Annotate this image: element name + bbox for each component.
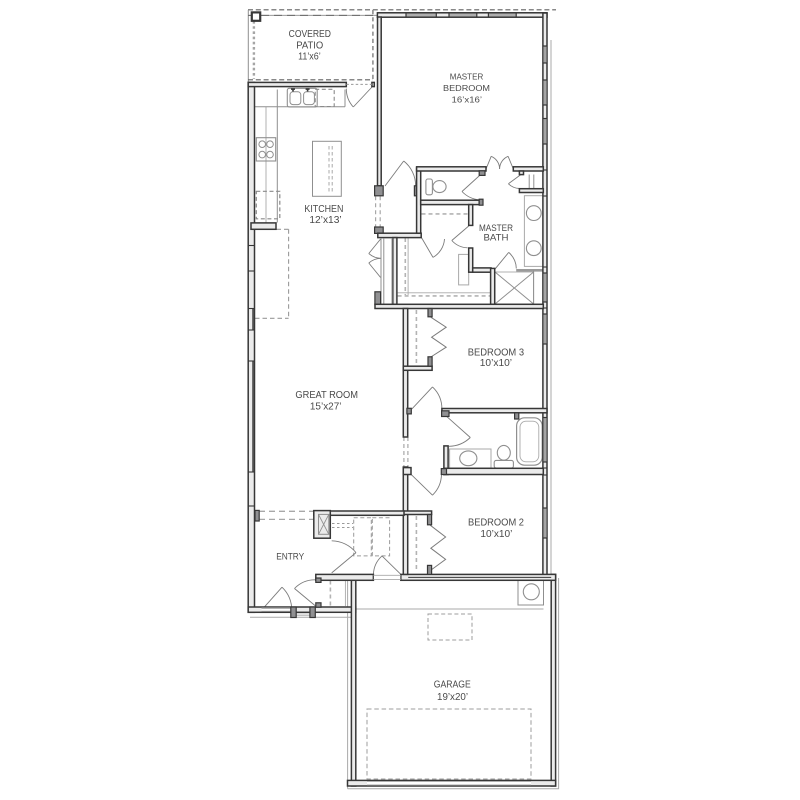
svg-text:BEDROOM 2: BEDROOM 2 [468,517,524,528]
svg-text:BEDROOM: BEDROOM [443,83,490,93]
svg-text:COVERED: COVERED [289,29,331,40]
svg-text:11’x6’: 11’x6’ [298,51,321,62]
svg-text:10’x10’: 10’x10’ [480,529,512,540]
svg-text:KITCHEN: KITCHEN [304,204,343,215]
svg-text:10’x10’: 10’x10’ [480,358,512,369]
svg-text:19’x20’: 19’x20’ [437,692,468,703]
svg-text:GREAT ROOM: GREAT ROOM [295,390,358,401]
svg-text:BATH: BATH [484,231,509,242]
svg-text:PATIO: PATIO [296,40,323,51]
svg-text:12’x13’: 12’x13’ [309,215,341,226]
svg-text:15’x27’: 15’x27’ [310,402,342,413]
svg-text:GARAGE: GARAGE [434,680,471,691]
svg-text:MASTER: MASTER [450,72,484,82]
svg-text:BEDROOM 3: BEDROOM 3 [468,348,524,359]
svg-text:16’x16’: 16’x16’ [452,95,483,105]
svg-text:ENTRY: ENTRY [276,552,304,562]
